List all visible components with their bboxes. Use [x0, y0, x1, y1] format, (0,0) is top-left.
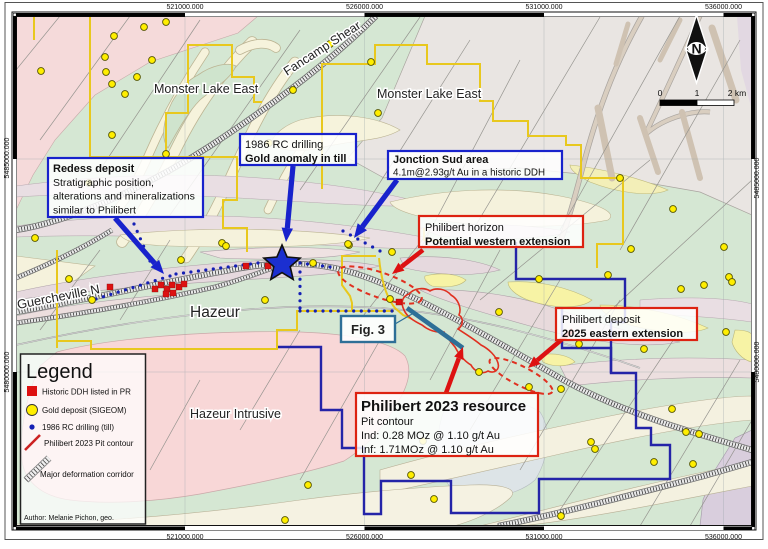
- svg-text:Redess deposit: Redess deposit: [53, 163, 135, 175]
- svg-text:Gold anomaly in till: Gold anomaly in till: [245, 153, 346, 165]
- svg-text:1986 RC drilling: 1986 RC drilling: [245, 139, 323, 151]
- svg-text:Hazeur Intrusive: Hazeur Intrusive: [190, 407, 281, 421]
- svg-text:1986 RC drilling (till): 1986 RC drilling (till): [42, 423, 114, 432]
- svg-text:0: 0: [658, 88, 663, 98]
- svg-text:Philibert horizon: Philibert horizon: [425, 222, 504, 234]
- svg-text:Monster Lake East: Monster Lake East: [154, 82, 259, 96]
- svg-text:Philibert 2023 resource: Philibert 2023 resource: [361, 398, 526, 415]
- svg-text:Potential western extension: Potential western extension: [425, 236, 571, 248]
- svg-text:5480000.000: 5480000.000: [4, 351, 11, 392]
- svg-text:526000.000: 526000.000: [346, 4, 383, 11]
- svg-text:Hazeur: Hazeur: [190, 304, 240, 321]
- svg-text:Historic DDH listed in PR: Historic DDH listed in PR: [42, 388, 131, 397]
- svg-text:2 km: 2 km: [728, 88, 746, 98]
- svg-text:Fig. 3: Fig. 3: [351, 322, 385, 337]
- svg-text:521000.000: 521000.000: [167, 534, 204, 541]
- svg-text:521000.000: 521000.000: [167, 4, 204, 11]
- svg-text:Major deformation corridor: Major deformation corridor: [40, 470, 134, 479]
- svg-text:531000.000: 531000.000: [526, 4, 563, 11]
- svg-text:Philibert 2023 Pit contour: Philibert 2023 Pit contour: [44, 439, 134, 448]
- svg-text:1: 1: [695, 88, 700, 98]
- svg-text:5480000.000: 5480000.000: [754, 341, 761, 382]
- svg-text:4.1m@2.93g/t Au in a historic: 4.1m@2.93g/t Au in a historic DDH: [393, 168, 545, 179]
- svg-text:5485000.000: 5485000.000: [754, 157, 761, 198]
- svg-text:5485000.000: 5485000.000: [4, 137, 11, 178]
- svg-text:N: N: [691, 41, 701, 57]
- svg-text:Jonction Sud area: Jonction Sud area: [393, 154, 489, 166]
- svg-text:alterations and mineralization: alterations and mineralizations: [53, 191, 195, 203]
- svg-text:531000.000: 531000.000: [526, 534, 563, 541]
- svg-text:Inf: 1.71MOz @ 1.10 g/t Au: Inf: 1.71MOz @ 1.10 g/t Au: [361, 444, 494, 456]
- svg-text:Ind: 0.28 MOz @ 1.10 g/t Au: Ind: 0.28 MOz @ 1.10 g/t Au: [361, 430, 500, 442]
- svg-text:similar to Philibert: similar to Philibert: [53, 204, 136, 216]
- svg-text:536000.000: 536000.000: [705, 4, 742, 11]
- svg-text:Stratigraphic position,: Stratigraphic position,: [53, 177, 154, 189]
- svg-text:2025 eastern extension: 2025 eastern extension: [562, 328, 683, 340]
- svg-text:Author: Melanie Pichon, geo.: Author: Melanie Pichon, geo.: [24, 515, 114, 522]
- svg-text:526000.000: 526000.000: [346, 534, 383, 541]
- svg-text:Philibert deposit: Philibert deposit: [562, 314, 640, 326]
- svg-text:Legend: Legend: [26, 361, 93, 383]
- svg-text:Gold deposit (SIGEOM): Gold deposit (SIGEOM): [42, 406, 127, 415]
- svg-text:536000.000: 536000.000: [705, 534, 742, 541]
- svg-text:Monster Lake East: Monster Lake East: [377, 87, 482, 101]
- svg-text:Pit contour: Pit contour: [361, 416, 414, 428]
